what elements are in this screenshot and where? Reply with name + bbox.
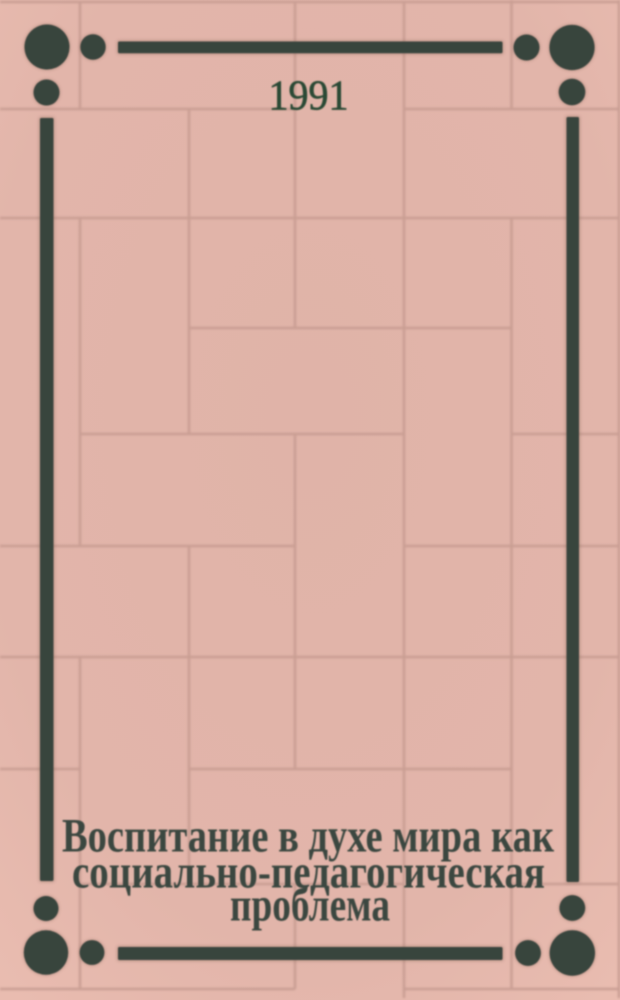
svg-text:1991: 1991 — [269, 73, 349, 120]
svg-text:проблема: проблема — [230, 879, 390, 932]
